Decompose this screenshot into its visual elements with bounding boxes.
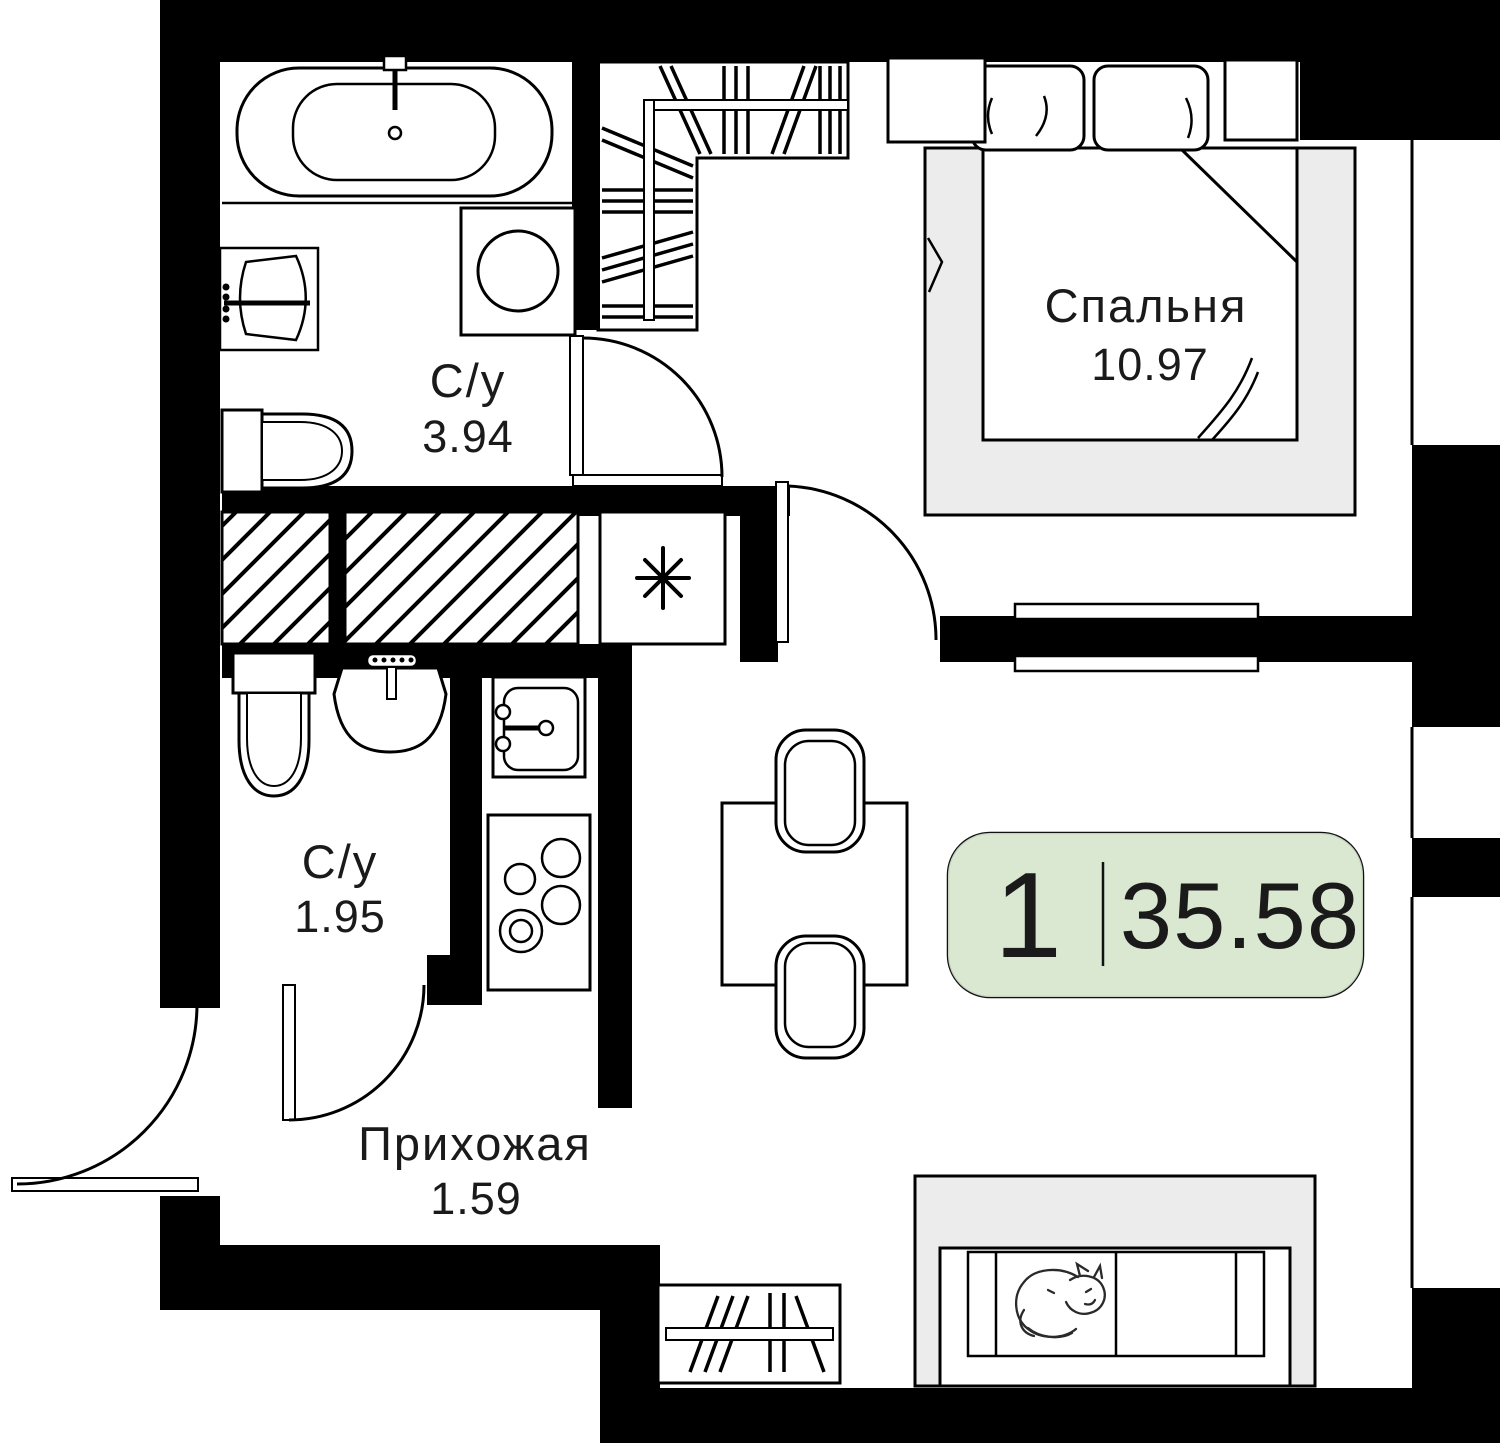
chair-icon — [776, 730, 864, 852]
chair-icon — [776, 936, 864, 1058]
nightstand-icon — [888, 58, 985, 142]
floor-plan: Спальня 10.97 С/у 3.94 С/у 1.95 Прихожая… — [0, 0, 1500, 1443]
floor-plan-drawing: Спальня 10.97 С/у 3.94 С/у 1.95 Прихожая… — [0, 0, 1500, 1443]
nightstand-icon — [1225, 60, 1297, 140]
bedroom-label: Спальня — [1045, 279, 1248, 332]
area-badge[interactable]: 1 35.58 — [948, 833, 1363, 997]
hallway-label: Прихожая — [358, 1117, 592, 1170]
toilet-label: С/у — [302, 835, 379, 888]
sink-icon — [220, 248, 318, 350]
bathroom-area: 3.94 — [422, 411, 514, 462]
toilet-area: 1.95 — [294, 891, 386, 942]
kitchen-sink-icon — [493, 677, 585, 777]
bedroom-area: 10.97 — [1091, 339, 1209, 390]
radiator-icon — [658, 1285, 840, 1383]
bathroom-label: С/у — [430, 354, 507, 407]
boiler-icon — [600, 512, 725, 644]
badge-total-area: 35.58 — [1120, 863, 1360, 968]
washbasin-icon — [334, 654, 446, 752]
bathtub-icon — [222, 56, 572, 203]
wardrobe-hatch — [222, 512, 578, 644]
toilet-icon — [233, 653, 315, 796]
sofa-icon — [915, 1176, 1315, 1386]
washing-machine-icon — [461, 208, 575, 335]
toilet-icon — [222, 410, 352, 492]
stove-icon — [488, 815, 590, 990]
hallway-area: 1.59 — [430, 1173, 522, 1224]
badge-rooms-count: 1 — [994, 847, 1062, 983]
